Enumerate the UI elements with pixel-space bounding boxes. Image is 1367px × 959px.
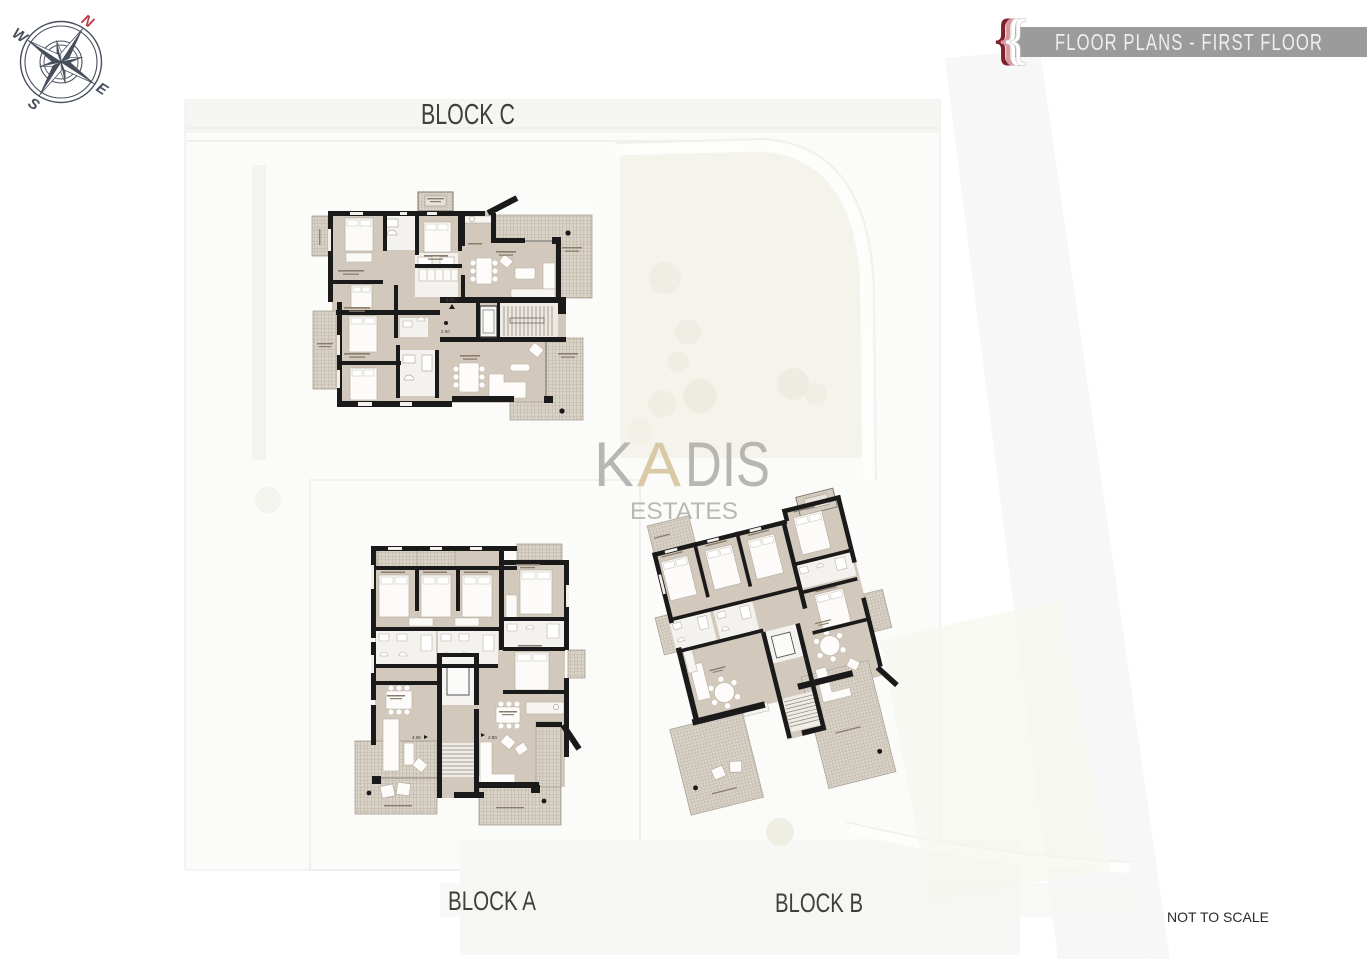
svg-text:A: A	[637, 430, 681, 500]
svg-text:4.08: 4.08	[446, 297, 455, 302]
svg-text:{: {	[1010, 10, 1027, 66]
svg-text:FLOOR PLANS - FIRST FLOOR: FLOOR PLANS - FIRST FLOOR	[1055, 29, 1323, 55]
svg-text:BLOCK B: BLOCK B	[775, 888, 863, 918]
svg-text:BLOCK A: BLOCK A	[448, 886, 536, 916]
svg-text:DIS: DIS	[685, 430, 770, 500]
svg-text:2.80: 2.80	[488, 735, 497, 740]
svg-text:NOT TO SCALE: NOT TO SCALE	[1167, 909, 1269, 925]
svg-text:2.80: 2.80	[441, 329, 450, 334]
svg-text:K: K	[594, 430, 634, 500]
svg-text:4.08: 4.08	[412, 735, 421, 740]
svg-text:BLOCK C: BLOCK C	[421, 99, 515, 131]
